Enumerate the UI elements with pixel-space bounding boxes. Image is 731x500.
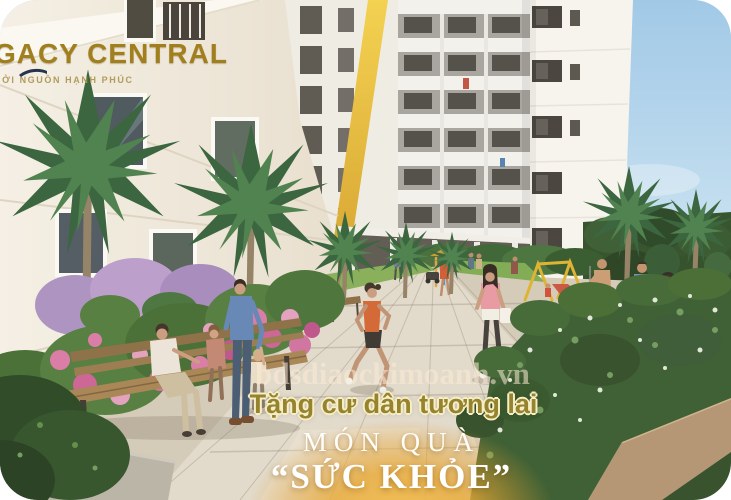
marketing-photo: GACY CENTRAL HỞI NGUỒN HẠNH PHÚC bdsdiao…	[0, 0, 731, 500]
caption-gift-label: MÓN QUÀ	[26, 429, 731, 456]
brand-logo: GACY CENTRAL HỞI NGUỒN HẠNH PHÚC	[0, 40, 228, 85]
caption-health-label: “SỨC KHỎE”	[26, 459, 731, 494]
brand-tagline: HỞI NGUỒN HẠNH PHÚC	[0, 76, 228, 85]
watermark-url: bdsdiaockimoanh.vn	[27, 358, 731, 389]
caption-line1: Tặng cư dân tương lai	[28, 391, 731, 418]
brand-name: GACY CENTRAL	[0, 40, 228, 68]
